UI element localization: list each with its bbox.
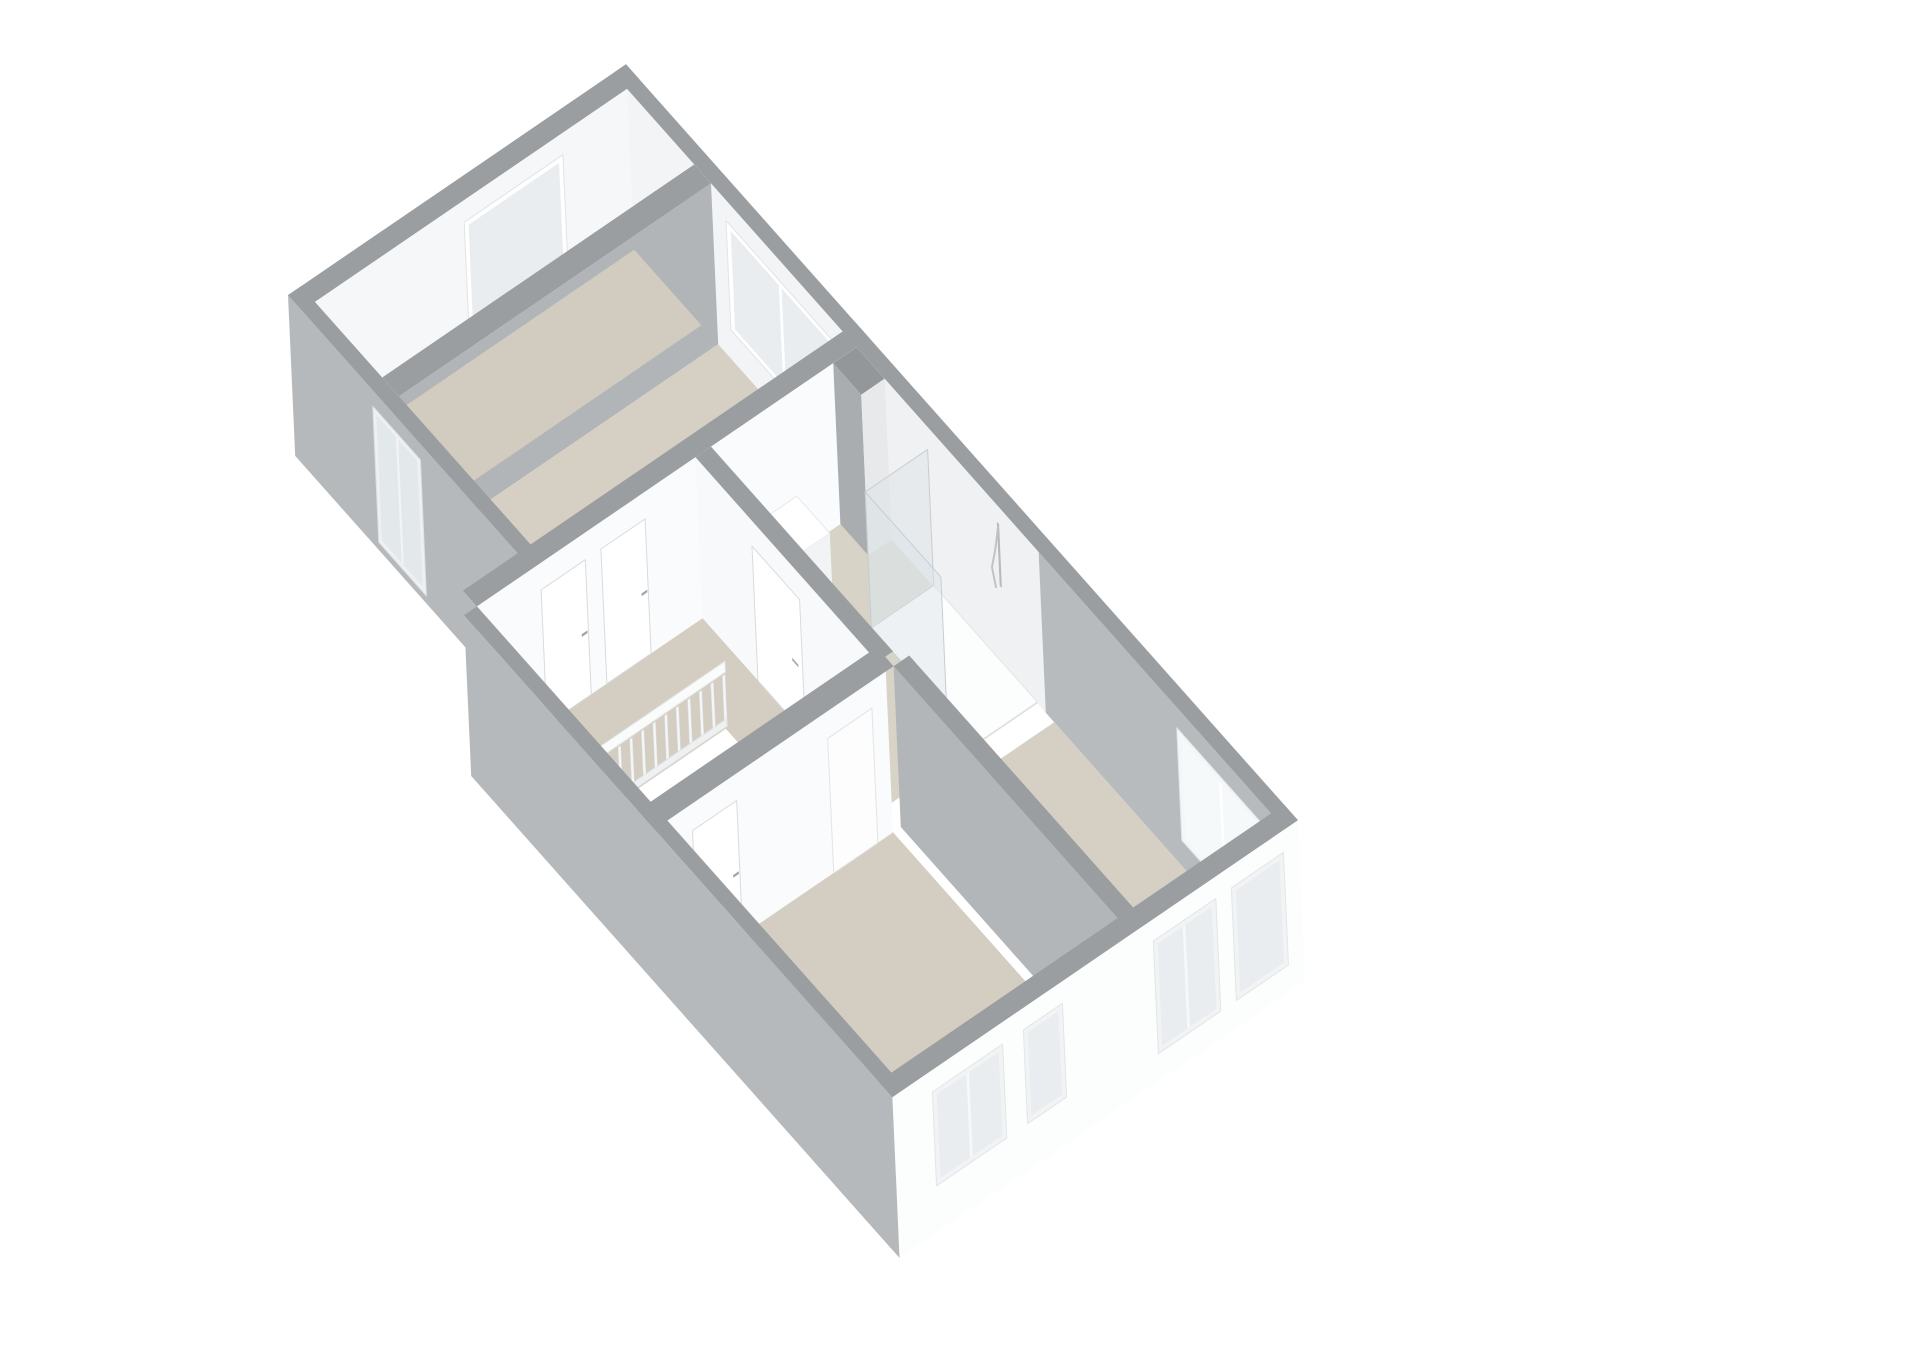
door-hall-2 bbox=[601, 519, 651, 684]
floorplan-svg bbox=[0, 0, 1920, 1358]
door-bedroom-c-closet bbox=[828, 708, 878, 873]
floorplan-3d-render bbox=[0, 0, 1920, 1358]
